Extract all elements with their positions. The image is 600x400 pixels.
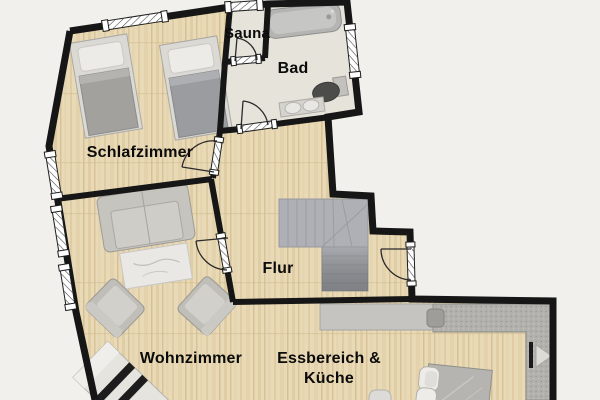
window [225, 0, 264, 13]
room-label-wohnzimmer: Wohnzimmer [140, 349, 242, 369]
wall-flur-essbereich [233, 299, 412, 302]
room-label-essbereich-line1: Essbereich & [277, 349, 381, 369]
room-label-flur: Flur [262, 259, 293, 279]
kitchen-sink [427, 309, 444, 327]
room-label-bad: Bad [278, 59, 309, 79]
room-label-essbereich-kueche: Essbereich & Küche [277, 349, 381, 389]
room-label-schlafzimmer: Schlafzimmer [87, 143, 193, 163]
room-label-essbereich-line2: Küche [277, 369, 381, 389]
dining-chair [369, 390, 391, 400]
floor-plan: Schlafzimmer Sauna Bad Flur Wohnzimmer E… [0, 0, 600, 400]
fridge-handle [529, 342, 533, 368]
room-label-sauna: Sauna [224, 24, 270, 44]
